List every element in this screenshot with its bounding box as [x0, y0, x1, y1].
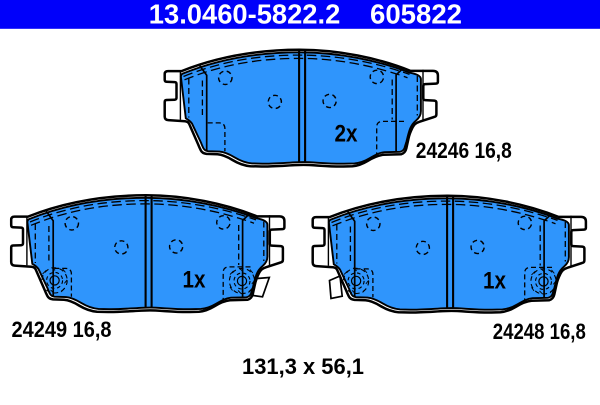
- svg-text:13.0460-5822.2: 13.0460-5822.2: [149, 0, 340, 30]
- svg-text:24248 16,8: 24248 16,8: [493, 319, 586, 344]
- svg-text:131,3 x 56,1: 131,3 x 56,1: [242, 354, 364, 379]
- svg-text:24249 16,8: 24249 16,8: [12, 317, 112, 342]
- svg-text:1x: 1x: [183, 267, 207, 294]
- svg-text:2x: 2x: [335, 120, 359, 147]
- svg-text:1x: 1x: [483, 268, 507, 295]
- svg-text:24246 16,8: 24246 16,8: [416, 138, 512, 163]
- svg-text:605822: 605822: [370, 0, 462, 30]
